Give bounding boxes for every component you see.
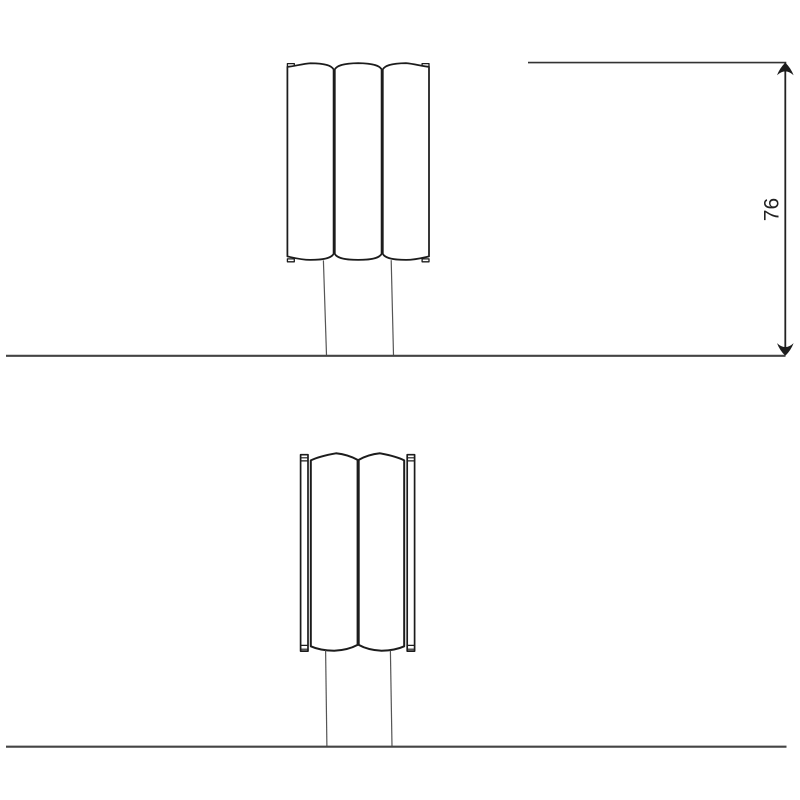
svg-text:76: 76 [761,198,784,221]
